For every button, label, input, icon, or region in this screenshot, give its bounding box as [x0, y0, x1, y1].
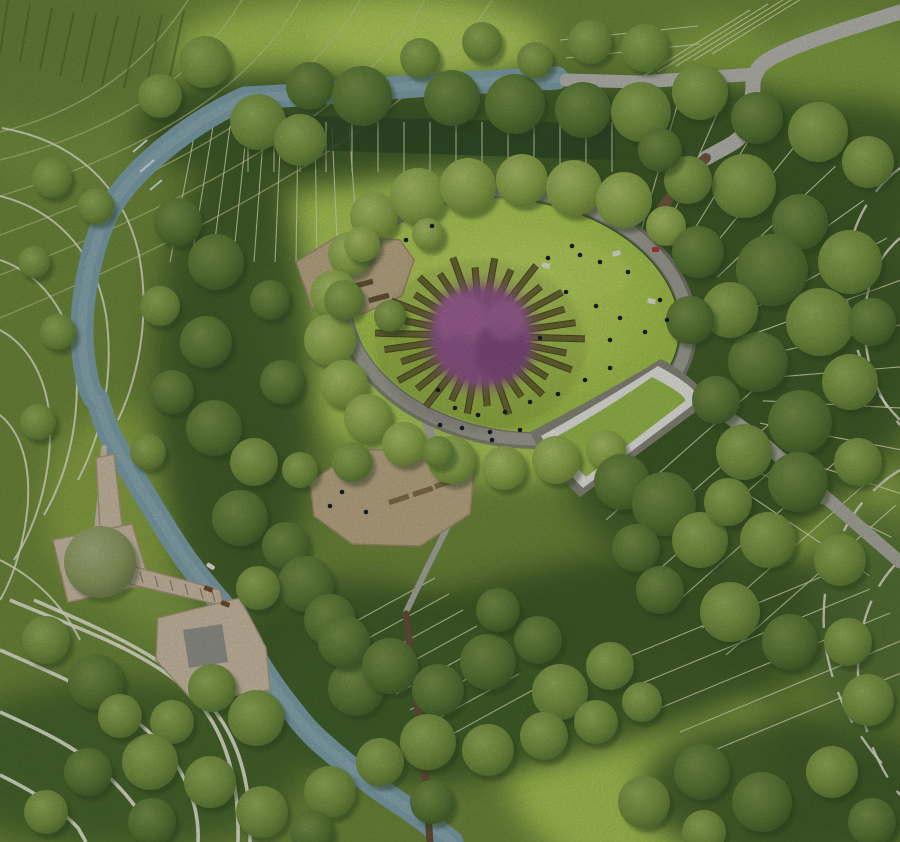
foliage-grain [0, 0, 900, 842]
grain-overlay [0, 0, 900, 842]
park-master-plan [0, 0, 900, 842]
aerial-view-svg [0, 0, 900, 842]
